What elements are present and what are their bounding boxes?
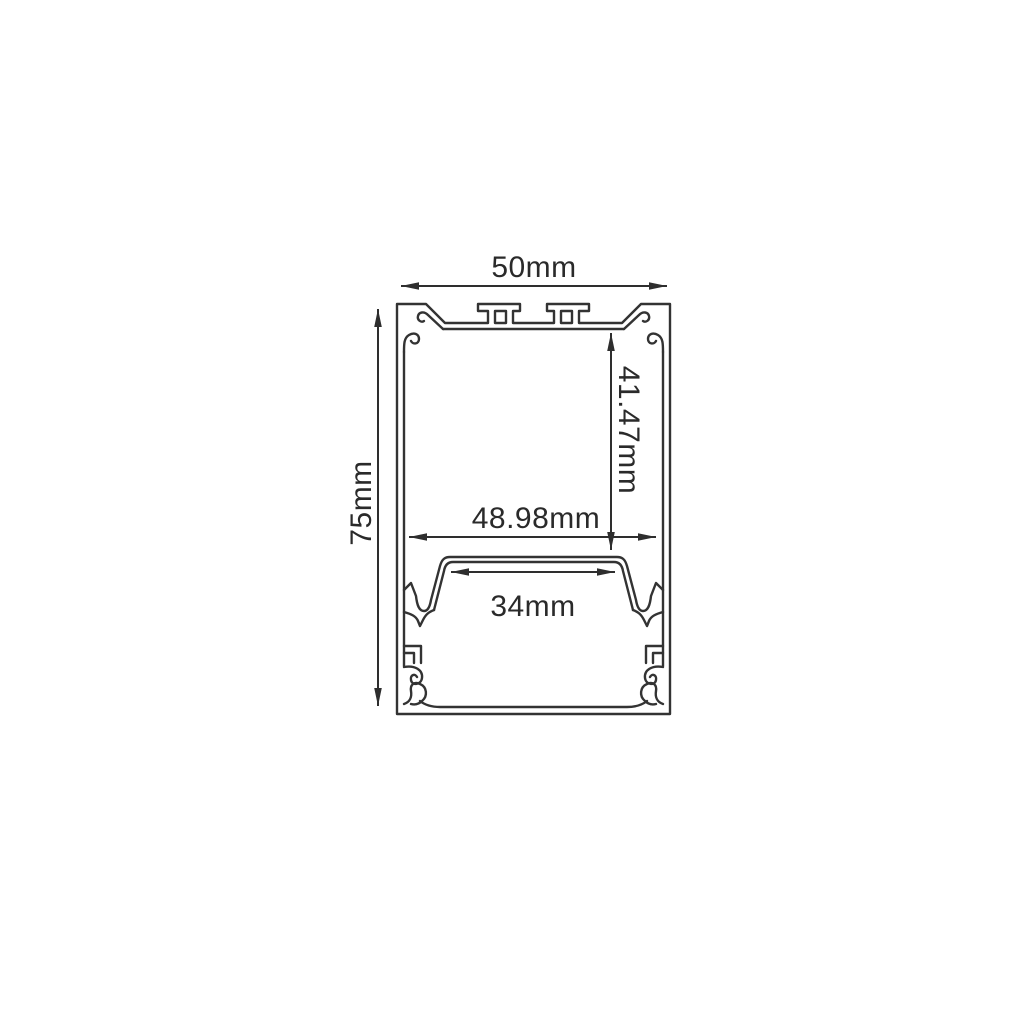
dimension-overall-height: 75mm (345, 309, 378, 706)
dimension-label-platform-width: 34mm (490, 590, 575, 623)
dimension-label-cavity-depth: 41.47mm (612, 366, 645, 495)
dimension-cavity-depth: 41.47mm (611, 333, 645, 550)
screw-port-top-right-inner-curl (648, 334, 663, 352)
screw-boss-bottom-right-upper (645, 667, 663, 684)
wall-hook-left (404, 646, 421, 663)
t-slot-void-right (561, 311, 572, 323)
screw-port-top-left-inner-curl (404, 334, 419, 352)
screw-boss-bottom-left-lower (404, 683, 426, 704)
t-slot-void-left (495, 311, 506, 323)
screw-boss-bottom-right-lower (641, 683, 663, 704)
dimension-cavity-width: 48.98mm (409, 502, 656, 537)
screw-port-top-right-outer-curl (624, 312, 649, 329)
dimension-label-cavity-width: 48.98mm (472, 502, 601, 535)
cavity-floor-line (420, 701, 647, 707)
platform-tooth-left (404, 610, 434, 626)
dimension-overall-width: 50mm (401, 251, 667, 286)
screw-port-top-left-outer-curl (418, 312, 443, 329)
dimension-platform-width: 34mm (451, 572, 615, 623)
dimension-label-overall-width: 50mm (491, 251, 576, 284)
wall-hook-right (646, 646, 663, 663)
drawing-canvas: 50mm 75mm 41.47mm 48.98mm 34mm (0, 0, 1024, 1024)
dimension-label-overall-height: 75mm (345, 460, 378, 545)
profile-drawing: 50mm 75mm 41.47mm 48.98mm 34mm (0, 0, 1024, 1024)
platform-tooth-right (633, 610, 663, 626)
screw-boss-bottom-left-upper (404, 667, 422, 684)
